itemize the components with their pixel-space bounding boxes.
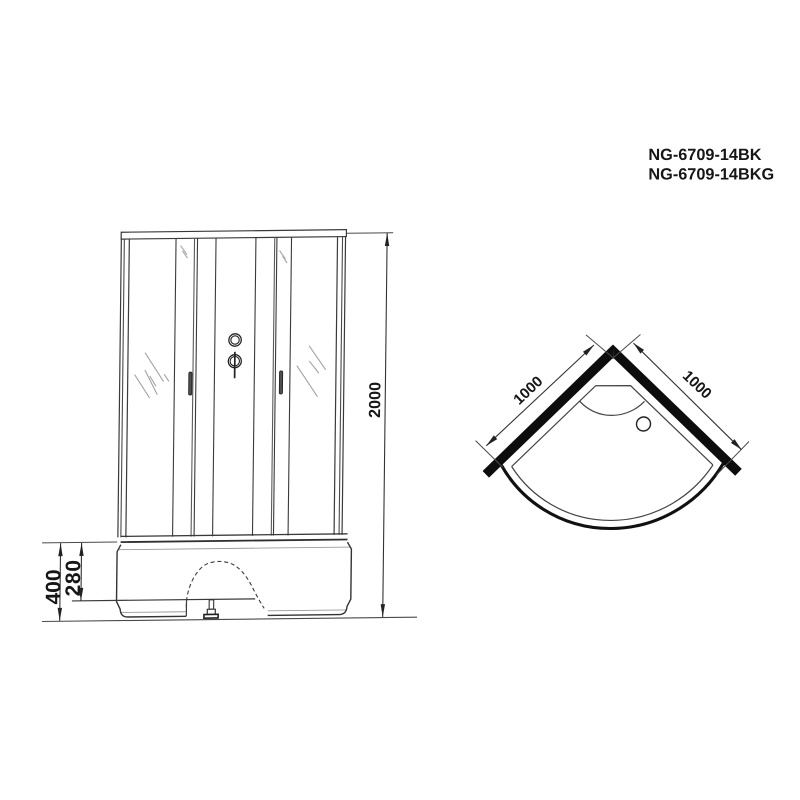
svg-text:2000: 2000 — [366, 382, 384, 418]
svg-text:NG-6709-14BK: NG-6709-14BK — [648, 146, 761, 164]
svg-text:NG-6709-14BKG: NG-6709-14BKG — [648, 166, 774, 184]
svg-text:1000: 1000 — [510, 373, 546, 408]
svg-text:280: 280 — [62, 559, 85, 596]
svg-text:1000: 1000 — [679, 367, 715, 402]
